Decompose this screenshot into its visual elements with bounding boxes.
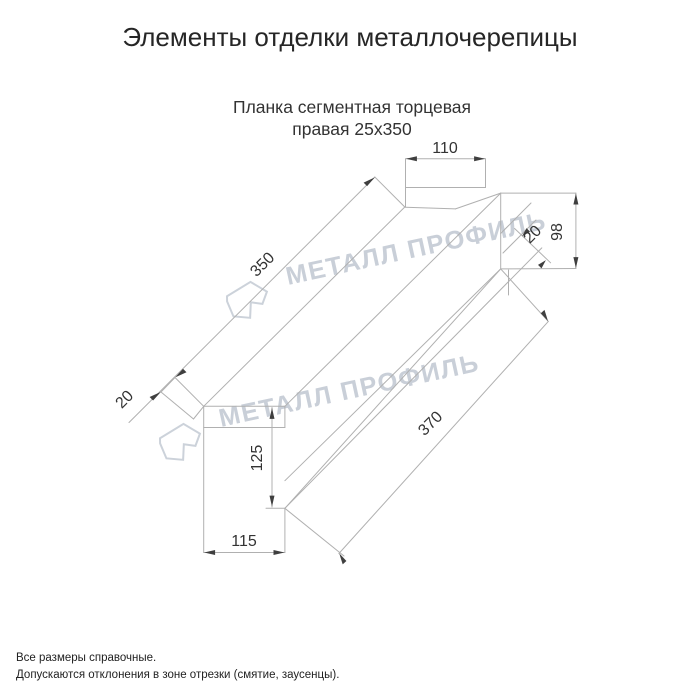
svg-text:110: 110 (432, 140, 458, 157)
svg-text:Допускаются отклонения в зоне: Допускаются отклонения в зоне отрезки (с… (16, 669, 339, 681)
svg-text:Элементы отделки металлочерепи: Элементы отделки металлочерепицы (122, 22, 577, 52)
svg-text:Планка сегментная торцевая: Планка сегментная торцевая (233, 97, 471, 117)
svg-text:98: 98 (549, 223, 566, 241)
svg-text:правая 25х350: правая 25х350 (292, 119, 412, 139)
svg-text:Все размеры справочные.: Все размеры справочные. (16, 652, 156, 664)
svg-text:125: 125 (249, 445, 266, 472)
svg-text:115: 115 (231, 533, 257, 550)
